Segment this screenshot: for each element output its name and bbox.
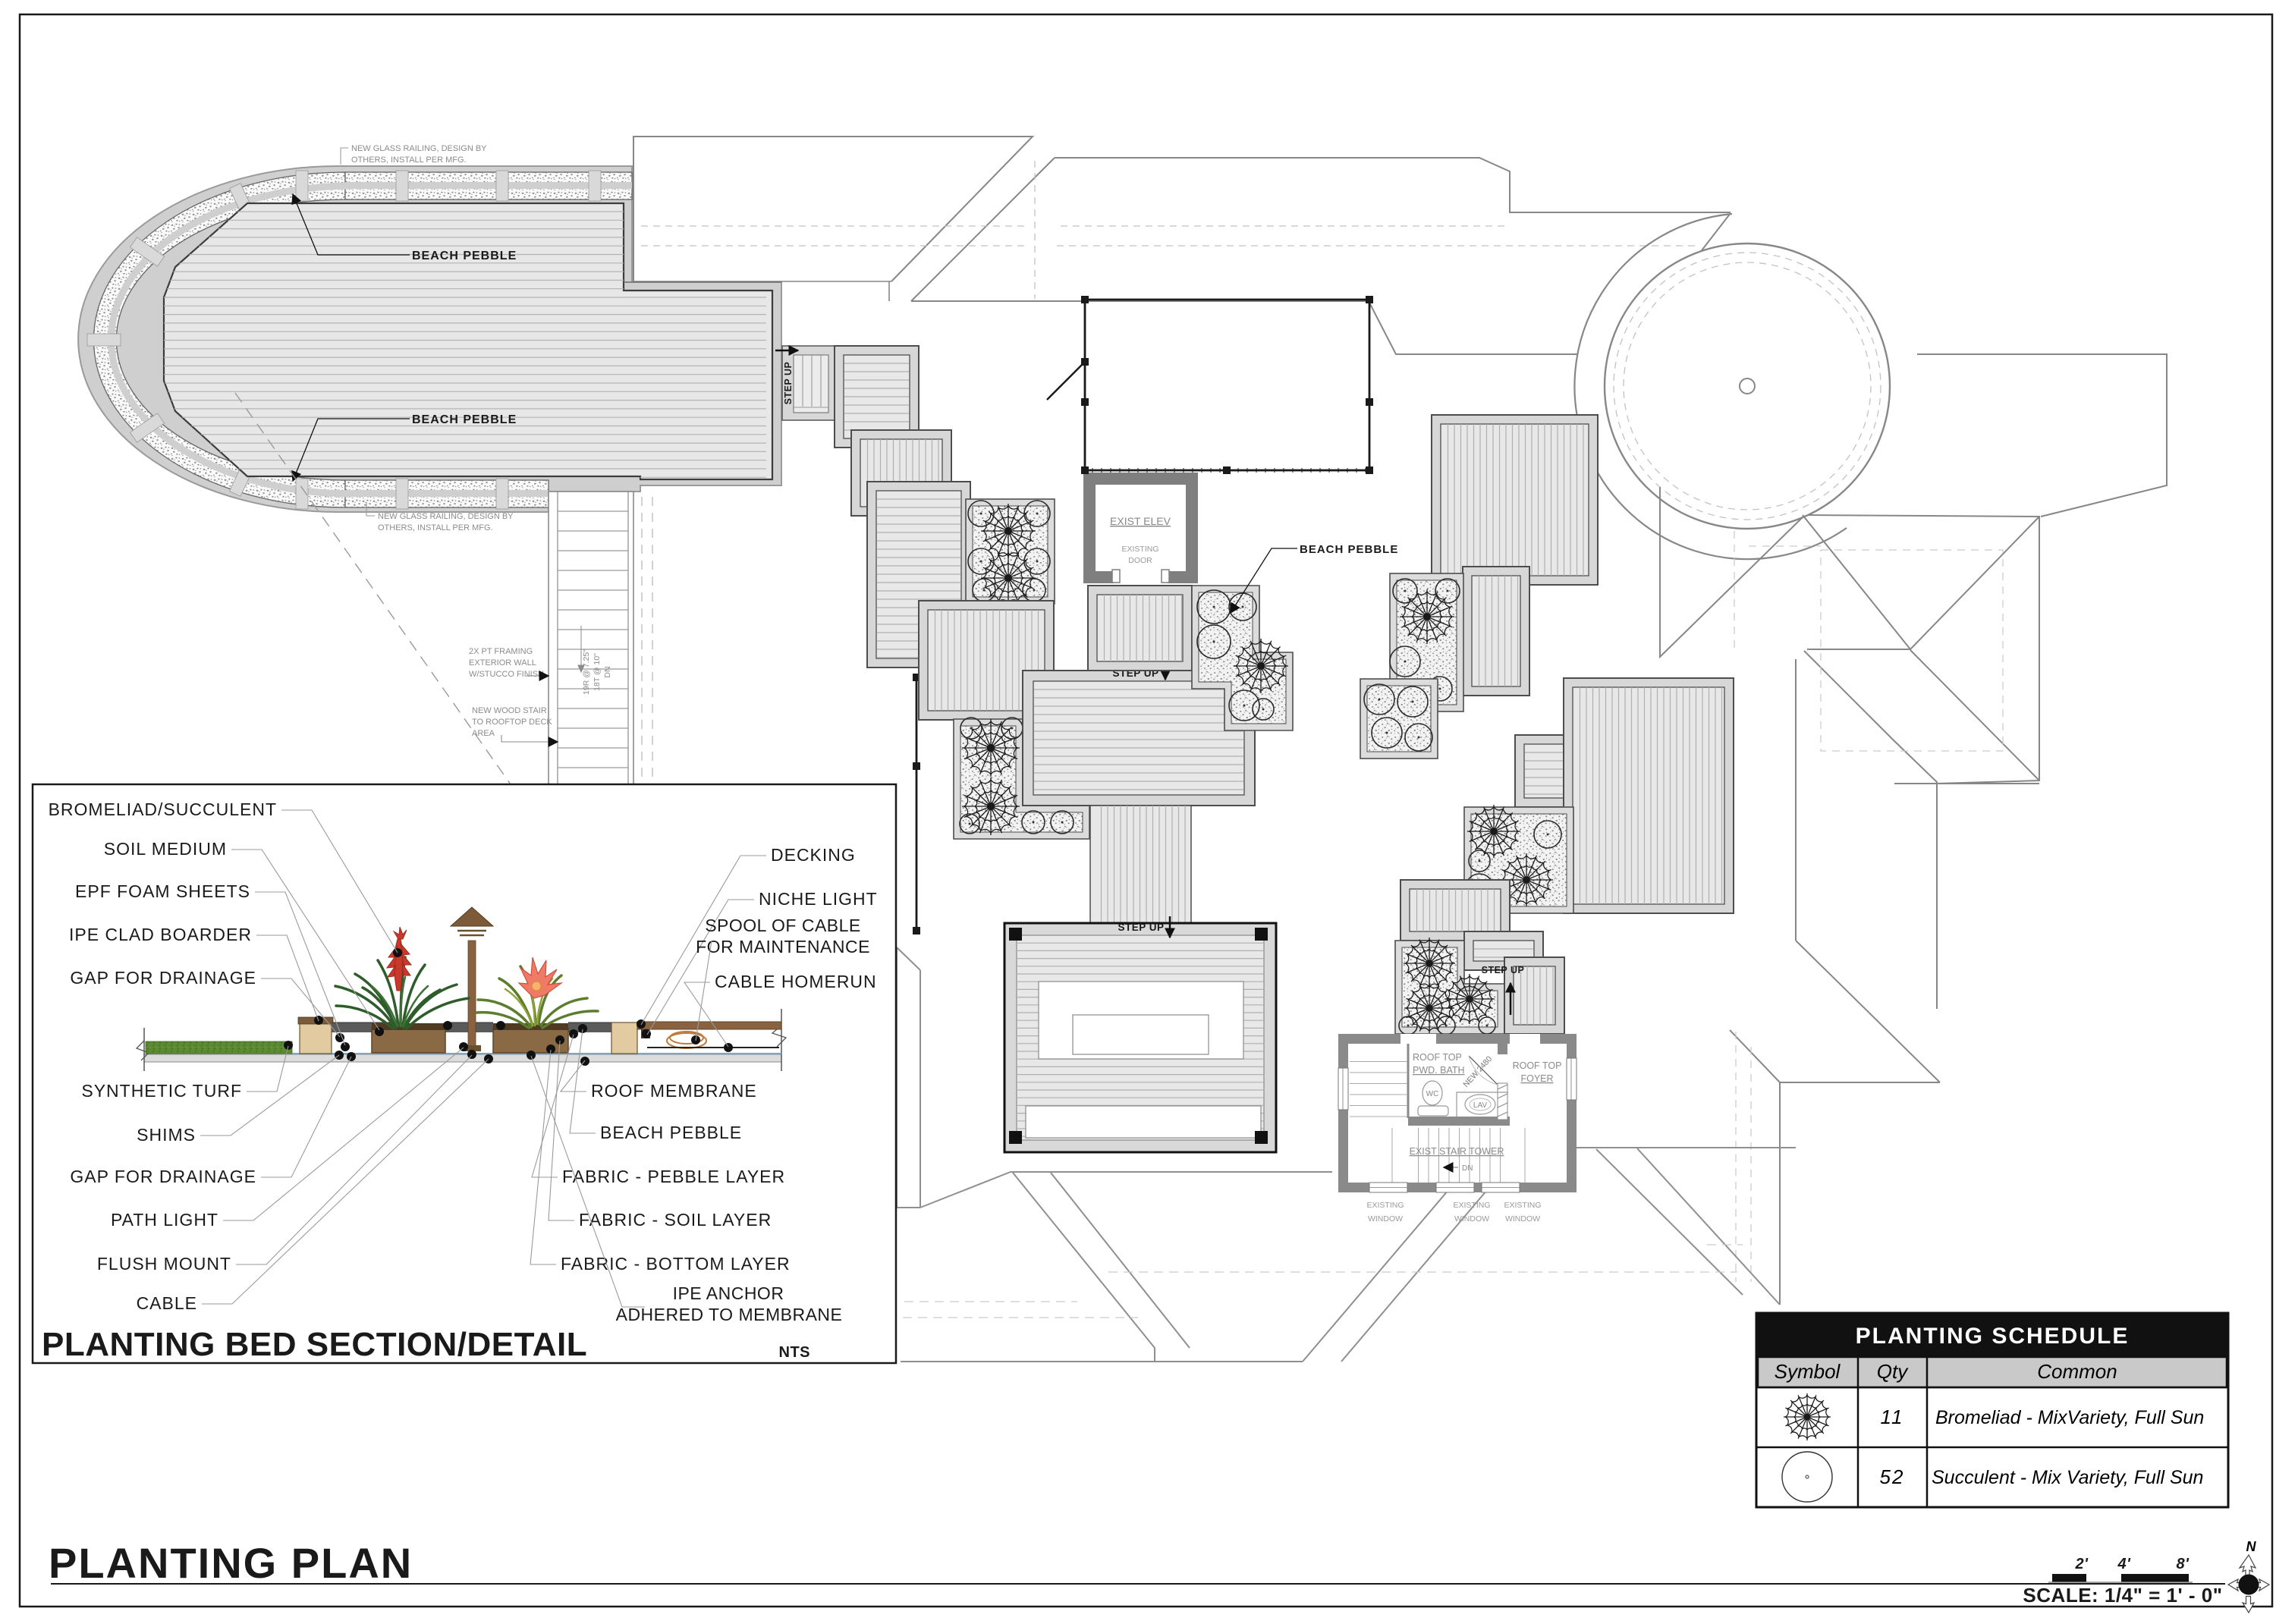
svg-text:NEW GLASS RAILING, DESIGN BY: NEW GLASS RAILING, DESIGN BY xyxy=(351,144,487,153)
svg-text:18T @ 10": 18T @ 10" xyxy=(593,653,602,691)
svg-text:BEACH PEBBLE: BEACH PEBBLE xyxy=(1300,543,1398,556)
svg-text:EXISTING: EXISTING xyxy=(1504,1201,1541,1210)
svg-text:NEW GLASS RAILING, DESIGN BY: NEW GLASS RAILING, DESIGN BY xyxy=(378,512,514,521)
svg-text:EXIST ELEV: EXIST ELEV xyxy=(1110,515,1171,527)
svg-text:52: 52 xyxy=(1880,1465,1905,1488)
svg-text:DOOR: DOOR xyxy=(1128,556,1152,565)
svg-text:ROOF TOP: ROOF TOP xyxy=(1513,1060,1562,1071)
svg-text:ROOF MEMBRANE: ROOF MEMBRANE xyxy=(591,1081,757,1101)
svg-text:BROMELIAD/SUCCULENT: BROMELIAD/SUCCULENT xyxy=(49,799,277,819)
svg-text:FOR MAINTENANCE: FOR MAINTENANCE xyxy=(696,937,870,956)
svg-text:SHIMS: SHIMS xyxy=(137,1125,196,1145)
svg-text:OTHERS, INSTALL PER MFG.: OTHERS, INSTALL PER MFG. xyxy=(351,155,467,165)
svg-text:NICHE LIGHT: NICHE LIGHT xyxy=(759,889,878,909)
svg-text:EXTERIOR WALL: EXTERIOR WALL xyxy=(469,658,536,668)
svg-text:BEACH PEBBLE: BEACH PEBBLE xyxy=(412,250,517,262)
svg-text:EXISTING: EXISTING xyxy=(1453,1201,1490,1210)
svg-text:Common: Common xyxy=(2037,1360,2117,1383)
svg-text:11: 11 xyxy=(1881,1406,1904,1428)
svg-text:8': 8' xyxy=(2177,1556,2190,1572)
svg-text:WINDOW: WINDOW xyxy=(1505,1214,1540,1223)
svg-text:2X PT FRAMING: 2X PT FRAMING xyxy=(469,647,533,656)
svg-text:PLANTING PLAN: PLANTING PLAN xyxy=(49,1539,413,1587)
svg-text:Qty: Qty xyxy=(1877,1360,1909,1383)
svg-text:BEACH PEBBLE: BEACH PEBBLE xyxy=(412,413,517,426)
svg-text:FOYER: FOYER xyxy=(1520,1073,1553,1084)
svg-text:FABRIC - BOTTOM LAYER: FABRIC - BOTTOM LAYER xyxy=(561,1254,791,1274)
svg-text:19R @ 7.25": 19R @ 7.25" xyxy=(582,649,591,695)
svg-text:EXIST STAIR TOWER: EXIST STAIR TOWER xyxy=(1410,1146,1504,1157)
svg-text:NTS: NTS xyxy=(779,1344,811,1361)
svg-text:STEP UP: STEP UP xyxy=(783,362,794,405)
svg-text:EXISTING: EXISTING xyxy=(1366,1201,1404,1210)
svg-text:GAP FOR DRAINAGE: GAP FOR DRAINAGE xyxy=(70,1167,256,1186)
svg-text:CABLE HOMERUN: CABLE HOMERUN xyxy=(715,972,877,991)
svg-text:DN: DN xyxy=(603,666,612,677)
svg-text:2': 2' xyxy=(2075,1556,2089,1572)
svg-text:SYNTHETIC TURF: SYNTHETIC TURF xyxy=(81,1081,242,1101)
svg-text:IPE CLAD BOARDER: IPE CLAD BOARDER xyxy=(69,925,252,944)
svg-text:SOIL MEDIUM: SOIL MEDIUM xyxy=(104,839,227,859)
svg-text:PATH LIGHT: PATH LIGHT xyxy=(111,1210,218,1230)
svg-text:STEP UP: STEP UP xyxy=(1118,922,1164,933)
svg-text:IPE ANCHOR: IPE ANCHOR xyxy=(673,1283,784,1303)
svg-text:AREA: AREA xyxy=(472,729,495,738)
svg-text:Bromeliad - MixVariety, Full S: Bromeliad - MixVariety, Full Sun xyxy=(1935,1407,2204,1428)
svg-text:Symbol: Symbol xyxy=(1775,1360,1841,1383)
svg-text:DN: DN xyxy=(1462,1164,1473,1173)
svg-text:WINDOW: WINDOW xyxy=(1368,1214,1403,1223)
svg-text:PLANTING BED SECTION/DETAIL: PLANTING BED SECTION/DETAIL xyxy=(42,1326,587,1363)
svg-text:GAP FOR DRAINAGE: GAP FOR DRAINAGE xyxy=(70,968,256,988)
svg-text:STEP UP: STEP UP xyxy=(1482,965,1525,975)
svg-text:FABRIC - PEBBLE LAYER: FABRIC - PEBBLE LAYER xyxy=(562,1167,785,1186)
svg-text:EPF FOAM SHEETS: EPF FOAM SHEETS xyxy=(75,881,250,901)
svg-text:N: N xyxy=(2246,1539,2257,1554)
svg-text:ADHERED TO MEMBRANE: ADHERED TO MEMBRANE xyxy=(616,1305,843,1324)
svg-text:ROOF TOP: ROOF TOP xyxy=(1413,1052,1462,1063)
svg-text:OTHERS, INSTALL PER MFG.: OTHERS, INSTALL PER MFG. xyxy=(378,523,493,532)
svg-text:SCALE: 1/4" = 1' - 0": SCALE: 1/4" = 1' - 0" xyxy=(2023,1584,2222,1607)
svg-text:PLANTING SCHEDULE: PLANTING SCHEDULE xyxy=(1856,1324,2130,1349)
svg-text:4': 4' xyxy=(2117,1556,2132,1572)
svg-text:FABRIC - SOIL LAYER: FABRIC - SOIL LAYER xyxy=(579,1210,772,1230)
svg-text:W/STUCCO FINISH: W/STUCCO FINISH xyxy=(469,670,544,679)
svg-text:DECKING: DECKING xyxy=(771,845,856,865)
svg-text:TO ROOFTOP DECK: TO ROOFTOP DECK xyxy=(472,718,552,727)
svg-text:PWD. BATH: PWD. BATH xyxy=(1413,1065,1465,1076)
svg-text:CABLE: CABLE xyxy=(137,1293,197,1313)
svg-text:Succulent - Mix Variety, Full: Succulent - Mix Variety, Full Sun xyxy=(1932,1467,2203,1488)
svg-text:NEW WOOD STAIR: NEW WOOD STAIR xyxy=(472,706,547,715)
svg-text:WINDOW: WINDOW xyxy=(1454,1214,1489,1223)
svg-text:FLUSH MOUNT: FLUSH MOUNT xyxy=(97,1254,231,1274)
svg-text:SPOOL OF CABLE: SPOOL OF CABLE xyxy=(705,916,861,935)
svg-text:BEACH PEBBLE: BEACH PEBBLE xyxy=(600,1123,742,1142)
svg-text:LAV: LAV xyxy=(1473,1101,1487,1110)
svg-text:WC: WC xyxy=(1426,1090,1439,1098)
svg-text:EXISTING: EXISTING xyxy=(1121,545,1158,554)
